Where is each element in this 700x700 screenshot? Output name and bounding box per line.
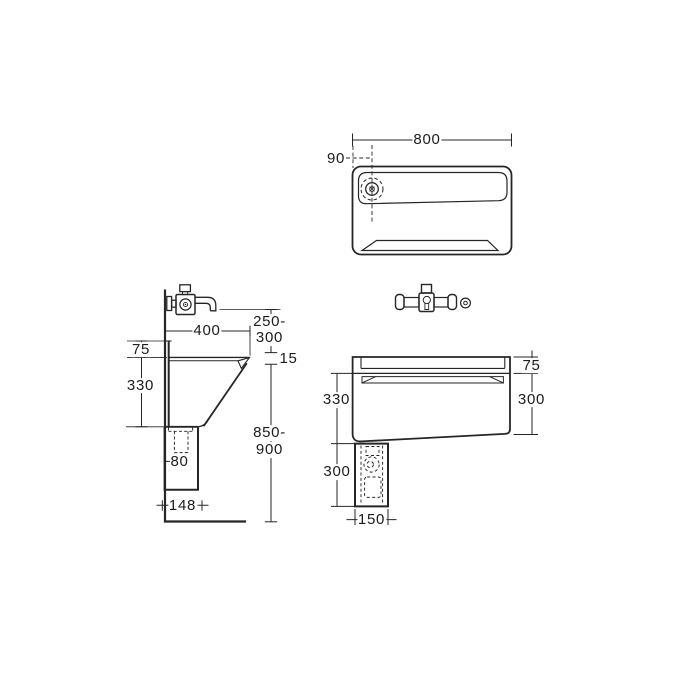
front-bowl-depth-label: 330: [322, 392, 351, 408]
front-duct-height-label: 300: [322, 464, 351, 480]
plan-width-label: 800: [412, 132, 441, 148]
side-spout-clearance-label-line2: 300: [255, 330, 284, 346]
front-view: [331, 351, 538, 526]
side-basin-profile: [165, 341, 249, 427]
technical-drawing: 800 90 400 250- 300 15 75 330 850- 900 8…: [0, 0, 700, 700]
side-duct-depth-label: 148: [168, 498, 197, 514]
front-duct-width-label: 150: [357, 512, 386, 528]
front-top-band: [361, 357, 505, 368]
side-depth-label: 400: [192, 323, 221, 339]
drawing-linework: [0, 0, 700, 700]
side-rim-thickness-label: 15: [278, 351, 298, 367]
plan-view: [346, 134, 512, 255]
side-trap-hidden: [169, 428, 193, 453]
front-trap-hidden: [361, 446, 383, 505]
plan-back-ledge: [359, 173, 508, 204]
front-basin-outline: [353, 357, 510, 441]
front-height-label: 300: [517, 392, 546, 408]
side-spout-clearance-label-line1: 250-: [252, 314, 287, 330]
tap-side-icon: [167, 285, 217, 315]
side-mount-height-label-line1: 850-: [252, 425, 287, 441]
side-bowl-depth-label: 330: [126, 378, 155, 394]
front-rim-channel: [362, 377, 503, 383]
side-upstand-label: 75: [131, 342, 151, 358]
plan-drain-offset-label: 90: [326, 151, 346, 167]
side-trap-width-label: 80: [169, 454, 189, 470]
tap-front-icon: [396, 285, 457, 312]
wall-flange-icon: [461, 298, 471, 308]
plan-front-lip: [362, 241, 498, 251]
side-mount-height-label-line2: 900: [255, 442, 284, 458]
front-upstand-label: 75: [521, 358, 541, 374]
